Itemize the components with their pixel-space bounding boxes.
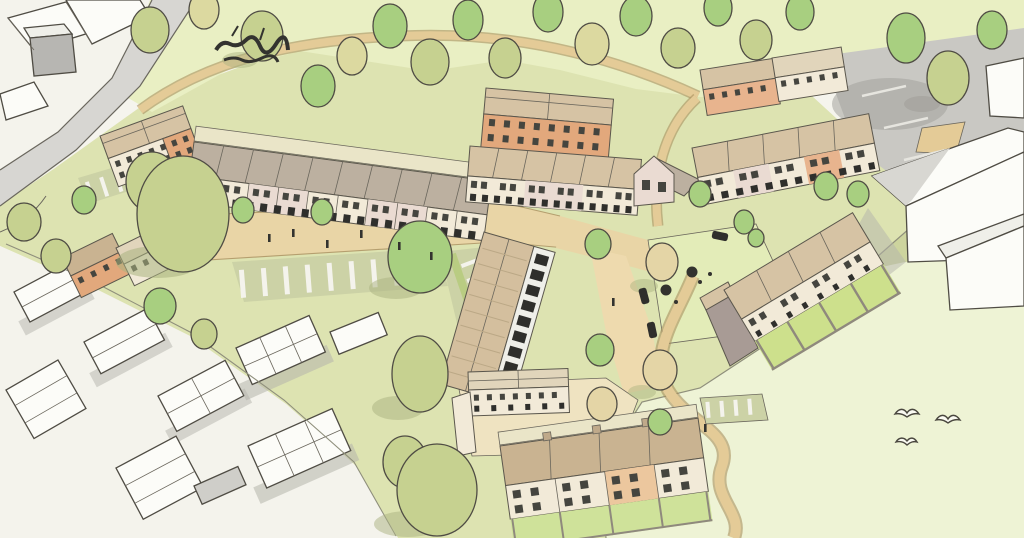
person-figure (430, 252, 433, 260)
person-figure (326, 240, 329, 248)
parasol-table (661, 285, 672, 296)
facade (469, 386, 570, 415)
aerial-sketch-canvas (0, 0, 1024, 538)
tree (533, 0, 563, 32)
tree (232, 197, 254, 223)
tree (646, 243, 678, 281)
window (642, 180, 650, 190)
large-tree (137, 156, 229, 272)
gray-cube-building (30, 34, 76, 76)
facade-pink-units (523, 180, 583, 210)
masterplan-illustration (0, 0, 1024, 538)
tree (927, 51, 969, 105)
tree (620, 0, 652, 36)
path-parking-court (700, 394, 768, 424)
tree (453, 0, 483, 40)
tree (337, 37, 367, 75)
person-figure (268, 234, 271, 242)
tree (661, 28, 695, 68)
mews-houses (468, 369, 569, 416)
tree (977, 11, 1007, 49)
person-figure (704, 424, 707, 432)
tree (191, 319, 217, 349)
person-figure (398, 242, 401, 250)
tree (373, 4, 407, 48)
tree (575, 23, 609, 65)
shrub (748, 229, 764, 247)
tree (7, 203, 41, 241)
person-figure (612, 298, 615, 306)
person-figure (292, 229, 295, 237)
tree (587, 387, 617, 421)
tree (301, 65, 335, 107)
chimney (592, 425, 601, 434)
tree (847, 181, 869, 207)
corner-building (986, 58, 1024, 118)
tree (643, 350, 677, 390)
person-dot (674, 300, 678, 304)
tree (131, 7, 169, 53)
tree (489, 38, 521, 78)
tree (311, 199, 333, 225)
tree (585, 229, 611, 259)
person-figure (360, 230, 363, 238)
tree (392, 336, 448, 412)
person-dot (708, 272, 712, 276)
tree (72, 186, 96, 214)
person-dot (698, 280, 702, 284)
facade-orange-unit (605, 465, 659, 506)
tree (586, 334, 614, 366)
tree (388, 221, 452, 293)
tree (887, 13, 925, 63)
window (658, 182, 666, 192)
tree (814, 172, 838, 200)
tree (648, 409, 672, 435)
chimney (543, 432, 552, 441)
tree (411, 39, 449, 85)
tree (144, 288, 176, 324)
parasol-table (687, 267, 698, 278)
tree (689, 181, 711, 207)
tree (740, 20, 772, 60)
large-tree (397, 444, 477, 536)
tree (786, 0, 814, 30)
tree (41, 239, 71, 273)
